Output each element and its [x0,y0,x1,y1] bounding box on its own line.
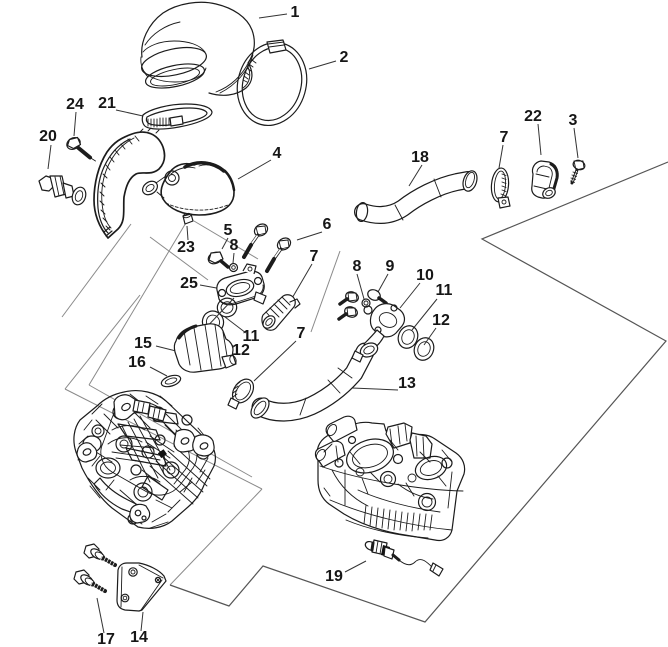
svg-text:11: 11 [436,282,453,299]
svg-text:1: 1 [291,4,300,21]
svg-text:6: 6 [323,216,332,233]
svg-text:12: 12 [432,312,450,329]
svg-text:9: 9 [386,258,395,275]
svg-text:8: 8 [230,237,239,254]
svg-text:18: 18 [411,149,429,166]
svg-text:23: 23 [177,239,195,256]
svg-text:22: 22 [524,108,542,125]
svg-text:17: 17 [97,631,115,647]
svg-text:7: 7 [310,248,319,265]
svg-text:10: 10 [416,267,434,284]
svg-text:4: 4 [273,145,282,162]
svg-text:13: 13 [398,375,416,392]
svg-text:8: 8 [353,258,362,275]
svg-text:20: 20 [39,128,57,145]
svg-text:21: 21 [98,95,116,112]
svg-text:15: 15 [134,335,152,352]
svg-text:16: 16 [128,354,146,371]
svg-text:25: 25 [180,275,198,292]
svg-text:3: 3 [569,112,578,129]
svg-text:14: 14 [130,629,148,646]
svg-text:7: 7 [500,129,509,146]
svg-text:24: 24 [66,96,84,113]
svg-text:19: 19 [325,568,343,585]
svg-text:7: 7 [297,325,306,342]
svg-text:2: 2 [340,49,349,66]
